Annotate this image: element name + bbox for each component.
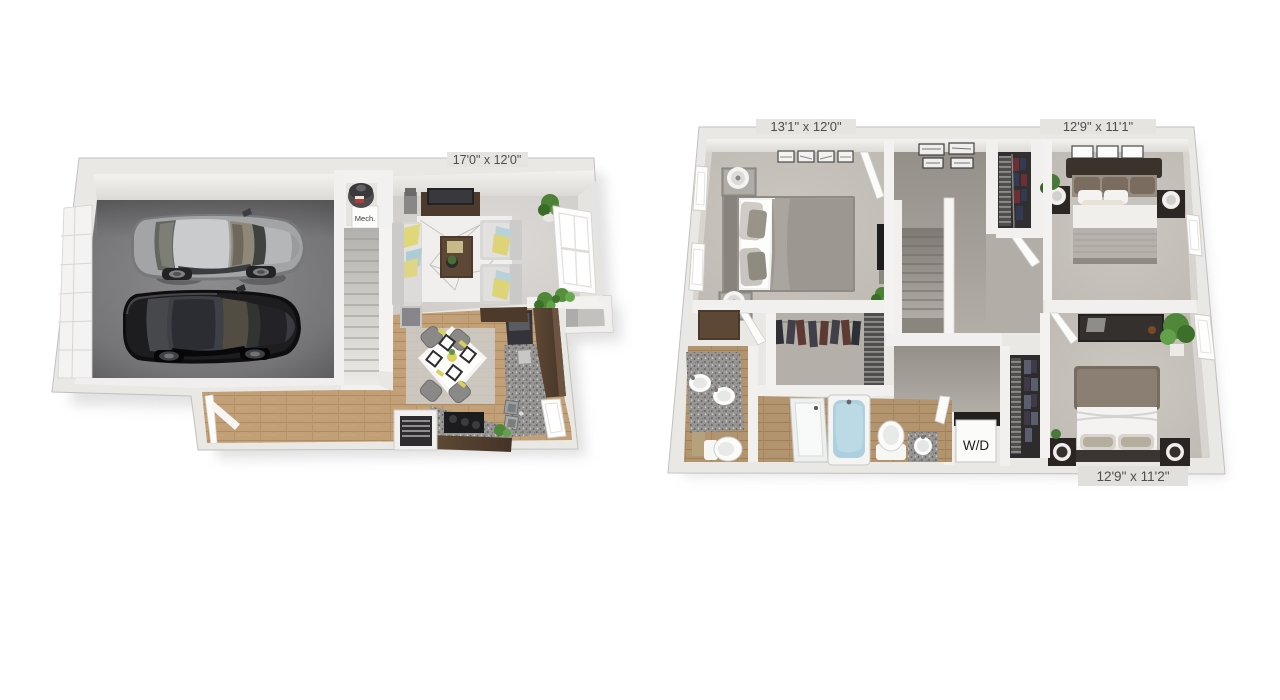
svg-text:Mech.: Mech. bbox=[355, 214, 375, 223]
svg-text:W/D: W/D bbox=[963, 438, 989, 453]
svg-text:12'9" x 11'1": 12'9" x 11'1" bbox=[1063, 119, 1134, 134]
svg-text:17'0" x 12'0": 17'0" x 12'0" bbox=[453, 153, 522, 167]
svg-text:13'1" x 12'0": 13'1" x 12'0" bbox=[770, 119, 842, 134]
svg-text:12'9" x 11'2": 12'9" x 11'2" bbox=[1096, 469, 1169, 484]
